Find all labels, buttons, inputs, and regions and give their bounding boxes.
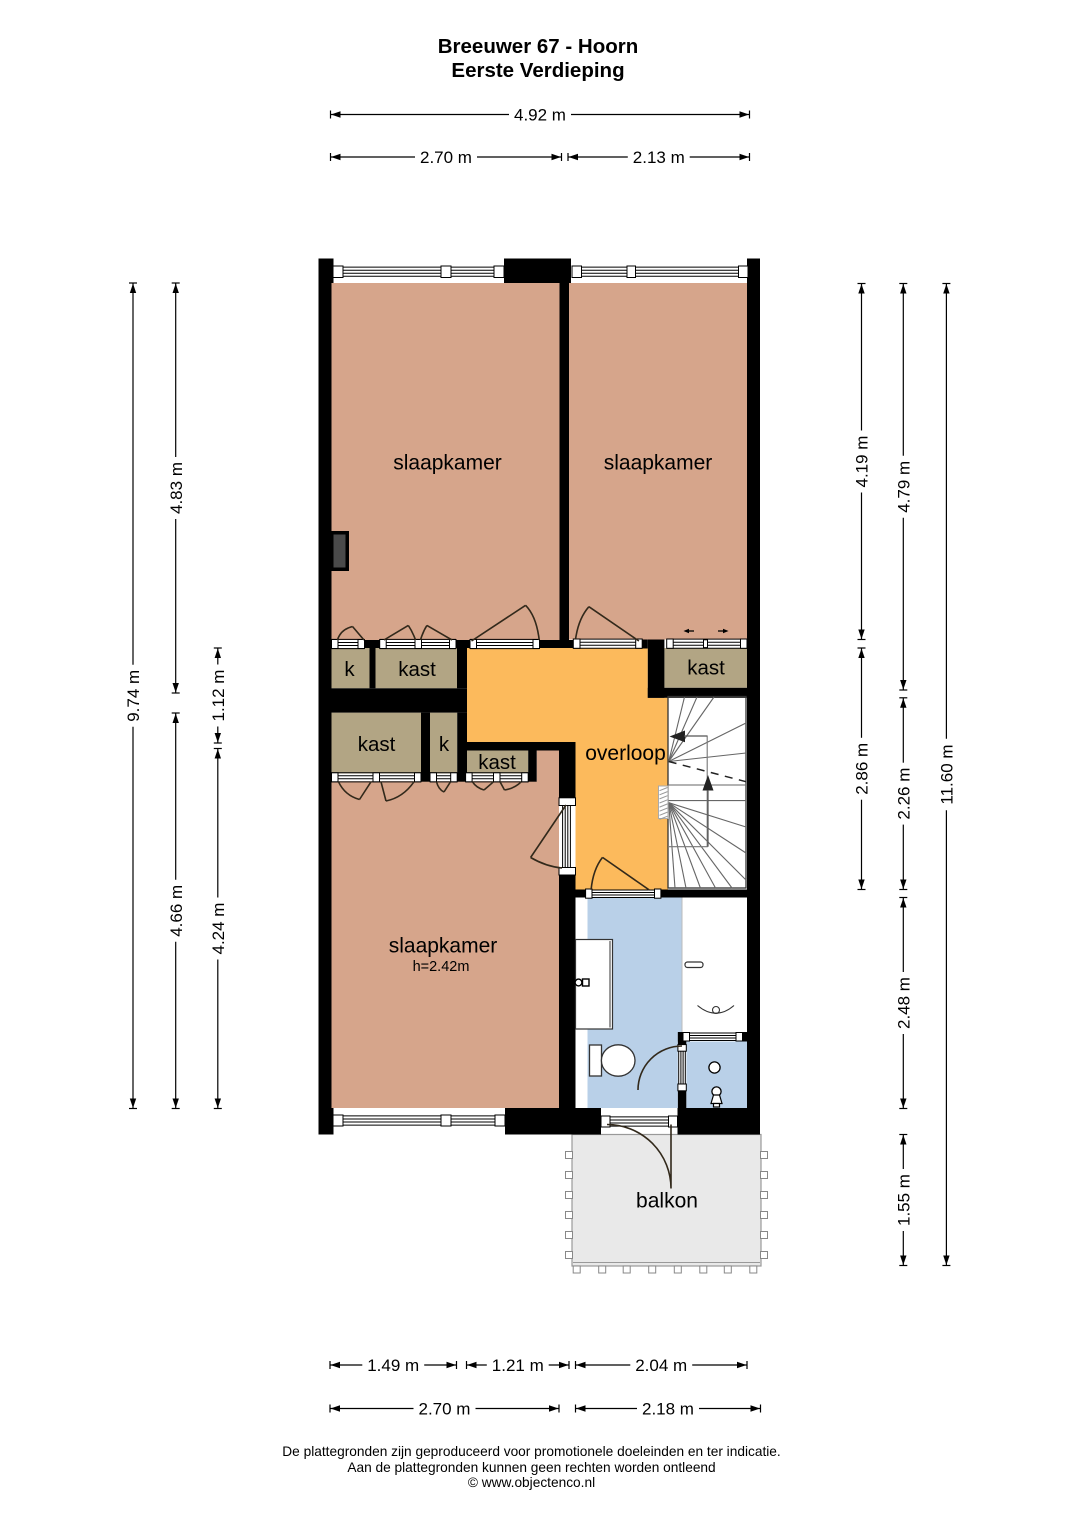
svg-text:kast: kast	[398, 658, 436, 681]
svg-text:4.24 m: 4.24 m	[209, 903, 228, 955]
svg-text:slaapkamer: slaapkamer	[604, 451, 713, 474]
svg-text:Breeuwer 67 - Hoorn: Breeuwer 67 - Hoorn	[438, 35, 639, 58]
svg-text:2.86 m: 2.86 m	[853, 743, 872, 795]
svg-text:4.92 m: 4.92 m	[514, 106, 566, 125]
svg-text:1.55 m: 1.55 m	[894, 1174, 913, 1226]
svg-text:kast: kast	[358, 733, 396, 756]
svg-text:kast: kast	[687, 657, 725, 680]
svg-text:slaapkamer: slaapkamer	[393, 451, 502, 474]
svg-text:balkon: balkon	[636, 1189, 698, 1212]
svg-text:4.79 m: 4.79 m	[894, 461, 913, 513]
svg-text:Aan de plattegronden kunnen ge: Aan de plattegronden kunnen geen rechten…	[347, 1460, 715, 1475]
svg-text:1.21 m: 1.21 m	[492, 1356, 544, 1375]
svg-text:2.13 m: 2.13 m	[633, 148, 685, 167]
svg-text:2.18 m: 2.18 m	[642, 1400, 694, 1419]
svg-text:4.19 m: 4.19 m	[853, 436, 872, 488]
svg-text:h=2.42m: h=2.42m	[413, 959, 470, 975]
svg-text:2.26 m: 2.26 m	[894, 768, 913, 820]
svg-text:4.83 m: 4.83 m	[167, 462, 186, 514]
svg-text:4.66 m: 4.66 m	[167, 885, 186, 937]
svg-text:2.04 m: 2.04 m	[635, 1356, 687, 1375]
svg-text:© www.objectenco.nl: © www.objectenco.nl	[468, 1475, 595, 1490]
svg-text:De plattegronden zijn geproduc: De plattegronden zijn geproduceerd voor …	[282, 1444, 780, 1459]
svg-text:k: k	[439, 733, 450, 756]
svg-text:overloop: overloop	[585, 742, 666, 765]
svg-text:slaapkamer: slaapkamer	[389, 934, 498, 957]
svg-text:kast: kast	[478, 751, 516, 774]
svg-text:1.49 m: 1.49 m	[367, 1356, 419, 1375]
svg-text:11.60 m: 11.60 m	[938, 744, 957, 804]
svg-text:1.12 m: 1.12 m	[209, 670, 228, 722]
svg-text:k: k	[344, 658, 355, 681]
svg-text:9.74 m: 9.74 m	[124, 670, 143, 722]
svg-text:2.70 m: 2.70 m	[420, 148, 472, 167]
svg-text:Eerste Verdieping: Eerste Verdieping	[451, 59, 624, 82]
svg-text:2.70 m: 2.70 m	[419, 1400, 471, 1419]
svg-text:2.48 m: 2.48 m	[894, 977, 913, 1029]
